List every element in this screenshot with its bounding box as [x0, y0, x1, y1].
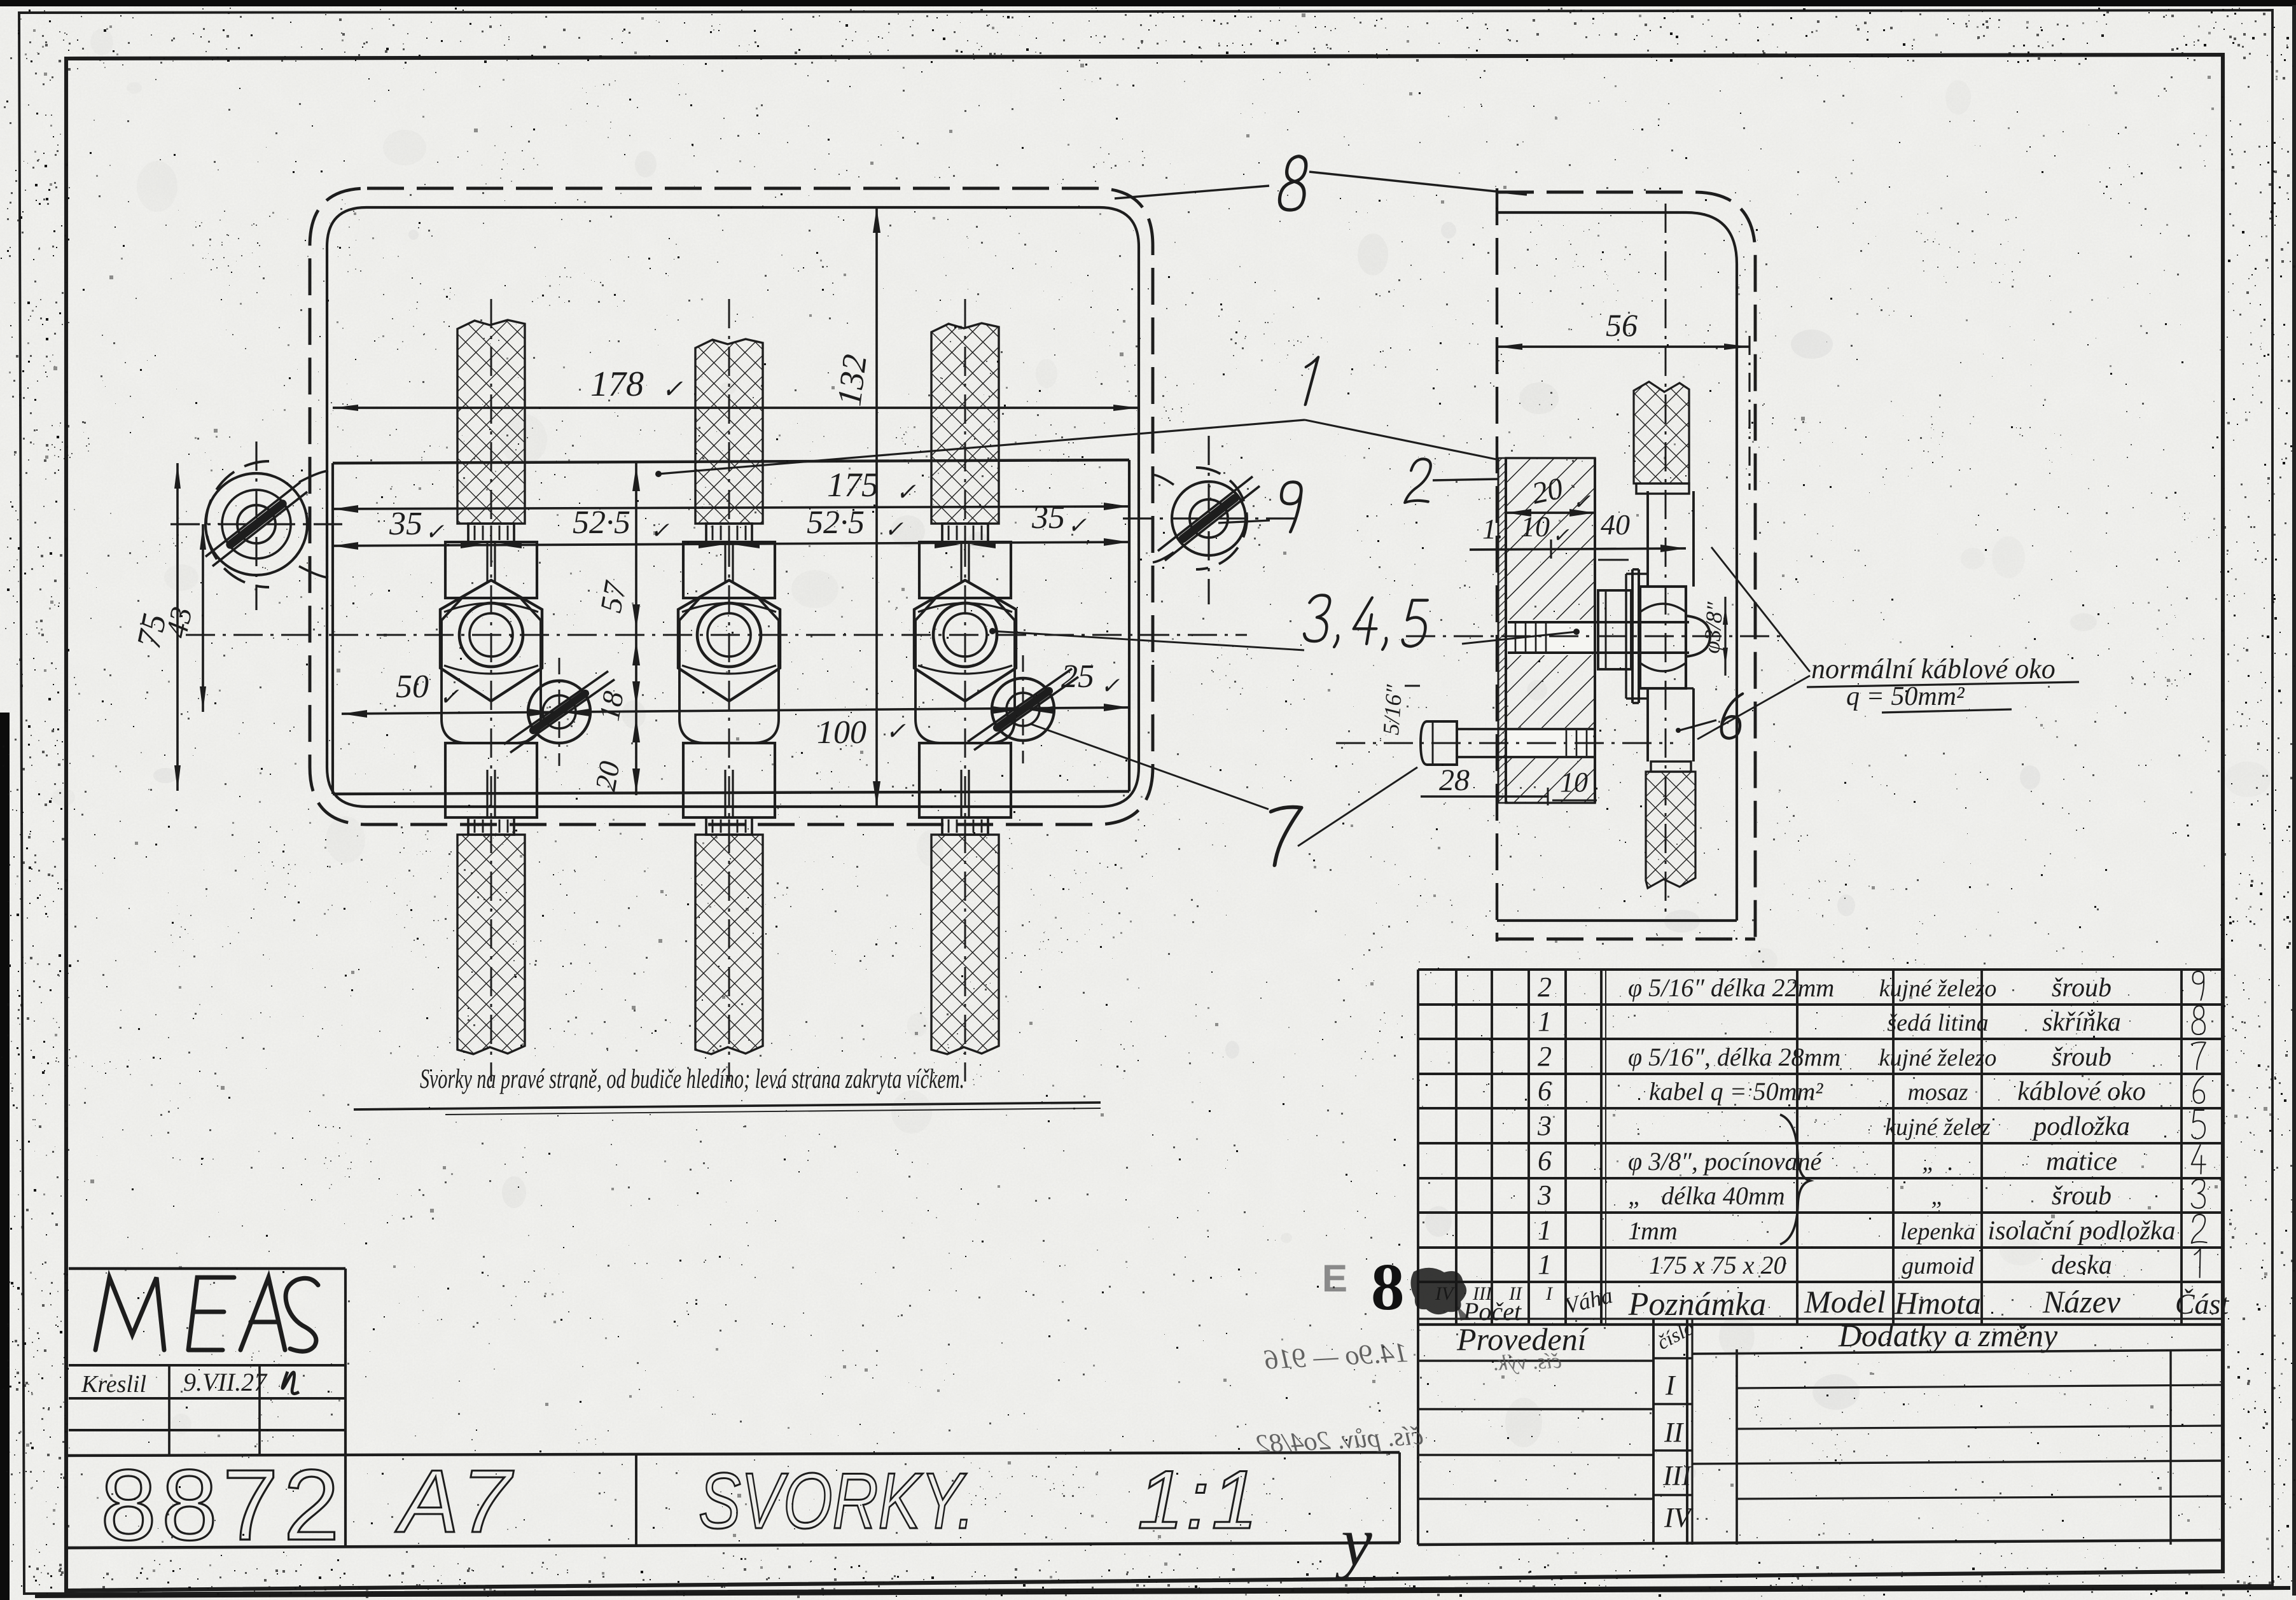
svg-text:✓: ✓ [439, 684, 459, 711]
svg-text:Hmota: Hmota [1894, 1285, 1981, 1321]
svg-text:Kreslil: Kreslil [81, 1371, 146, 1398]
svg-text:178: 178 [590, 365, 644, 404]
svg-text:2: 2 [1538, 1041, 1552, 1072]
svg-text:φ 3/8″, pocínované: φ 3/8″, pocínované [1628, 1147, 1823, 1176]
svg-text:φ 5/16″, délka 28mm: φ 5/16″, délka 28mm [1628, 1043, 1840, 1071]
svg-text:kujné železo: kujné železo [1879, 975, 1997, 1002]
svg-text:3: 3 [1537, 1110, 1552, 1141]
svg-text:I: I [1665, 1370, 1676, 1401]
svg-text:✓: ✓ [886, 718, 906, 745]
svg-text:20: 20 [589, 759, 626, 793]
svg-text:✓: ✓ [1101, 673, 1120, 699]
svg-text:šroub: šroub [2052, 1181, 2112, 1211]
svg-text:56: 56 [1606, 307, 1638, 343]
svg-text:2: 2 [1538, 971, 1552, 1003]
svg-text:100: 100 [817, 714, 866, 751]
svg-text:šedá litina: šedá litina [1887, 1010, 1988, 1036]
svg-text:Model: Model [1804, 1284, 1886, 1319]
svg-text:„ .: „ . [1922, 1149, 1954, 1176]
svg-text:28: 28 [1439, 763, 1470, 797]
svg-text:káblové oko: káblové oko [2017, 1077, 2146, 1106]
svg-text:10: 10 [1520, 510, 1550, 543]
svg-text:kujné železo: kujné železo [1879, 1045, 1997, 1071]
svg-text:kujné želez: kujné želez [1885, 1114, 1991, 1141]
svg-text:skříňka: skříňka [2042, 1008, 2121, 1037]
svg-text:40: 40 [1601, 508, 1630, 541]
svg-text:35: 35 [1031, 499, 1065, 536]
svg-text:175: 175 [827, 466, 879, 504]
svg-text:✓: ✓ [1573, 490, 1591, 514]
svg-text:„ délka 40mm: „ délka 40mm [1628, 1181, 1785, 1210]
svg-text:šroub: šroub [2052, 973, 2112, 1003]
svg-text:175 x 75 x 20: 175 x 75 x 20 [1649, 1251, 1786, 1279]
svg-text:1: 1 [1538, 1006, 1552, 1037]
svg-text:✓: ✓ [425, 519, 444, 545]
svg-text:A7: A7 [395, 1451, 514, 1551]
svg-text:kabel q = 50mm²: kabel q = 50mm² [1649, 1077, 1823, 1106]
svg-text:φ 5/16″ délka 22mm: φ 5/16″ délka 22mm [1628, 973, 1834, 1002]
svg-text:čís. výk.: čís. výk. [1492, 1349, 1562, 1375]
svg-text:φ3/8″: φ3/8″ [1699, 601, 1728, 655]
svg-text:132: 132 [830, 352, 873, 408]
svg-text:E: E [1322, 1257, 1347, 1300]
svg-text:35: 35 [389, 506, 422, 542]
svg-text:Název: Název [2042, 1284, 2121, 1319]
svg-text:deska: deska [2051, 1251, 2112, 1280]
svg-text:II: II [1664, 1417, 1685, 1448]
svg-text:✓: ✓ [1068, 513, 1087, 538]
svg-text:52·5: 52·5 [807, 504, 865, 541]
svg-text:„: „ [1931, 1183, 1944, 1210]
svg-text:✓: ✓ [896, 479, 916, 506]
svg-text:50: 50 [396, 669, 429, 705]
svg-text:šroub: šroub [2052, 1043, 2112, 1072]
svg-text:3: 3 [1537, 1179, 1552, 1211]
svg-text:10: 10 [1560, 767, 1588, 798]
svg-text:1: 1 [1538, 1249, 1552, 1280]
svg-text:6: 6 [1538, 1145, 1552, 1176]
svg-text:1: 1 [1538, 1214, 1552, 1246]
svg-text:✓: ✓ [650, 518, 669, 543]
svg-text:✓: ✓ [1552, 524, 1569, 546]
svg-text:mosaz: mosaz [1907, 1079, 1968, 1106]
svg-text:Dodatky a změny: Dodatky a změny [1838, 1318, 2058, 1353]
svg-text:Část: Část [2175, 1288, 2230, 1320]
svg-text:6: 6 [1538, 1075, 1552, 1106]
svg-text:lepenka: lepenka [1900, 1218, 1975, 1245]
svg-text:1:1: 1:1 [1138, 1453, 1260, 1546]
svg-text:1.: 1. [1482, 513, 1503, 545]
svg-text:1mm: 1mm [1628, 1216, 1678, 1245]
svg-text:q = 50mm²: q = 50mm² [1846, 682, 1965, 711]
svg-text:Svorky na pravé straně, od bud: Svorky na pravé straně, od budiče hledín… [420, 1064, 964, 1094]
svg-text:8: 8 [1371, 1249, 1405, 1324]
svg-text:gumoid: gumoid [1902, 1253, 1975, 1279]
svg-text:9.VII.27: 9.VII.27 [183, 1368, 268, 1396]
svg-text:matice: matice [2046, 1147, 2117, 1176]
svg-text:25: 25 [1061, 658, 1094, 695]
svg-text:IV: IV [1664, 1502, 1694, 1533]
svg-text:5/16″: 5/16″ [1378, 683, 1407, 736]
svg-text:Poznámka: Poznámka [1628, 1286, 1767, 1323]
svg-text:✓: ✓ [662, 375, 683, 403]
svg-text:podložka: podložka [2031, 1112, 2130, 1141]
svg-text:normální káblové oko: normální káblové oko [1811, 653, 2056, 685]
svg-text:52·5: 52·5 [573, 504, 630, 541]
svg-text:8872: 8872 [101, 1449, 345, 1561]
